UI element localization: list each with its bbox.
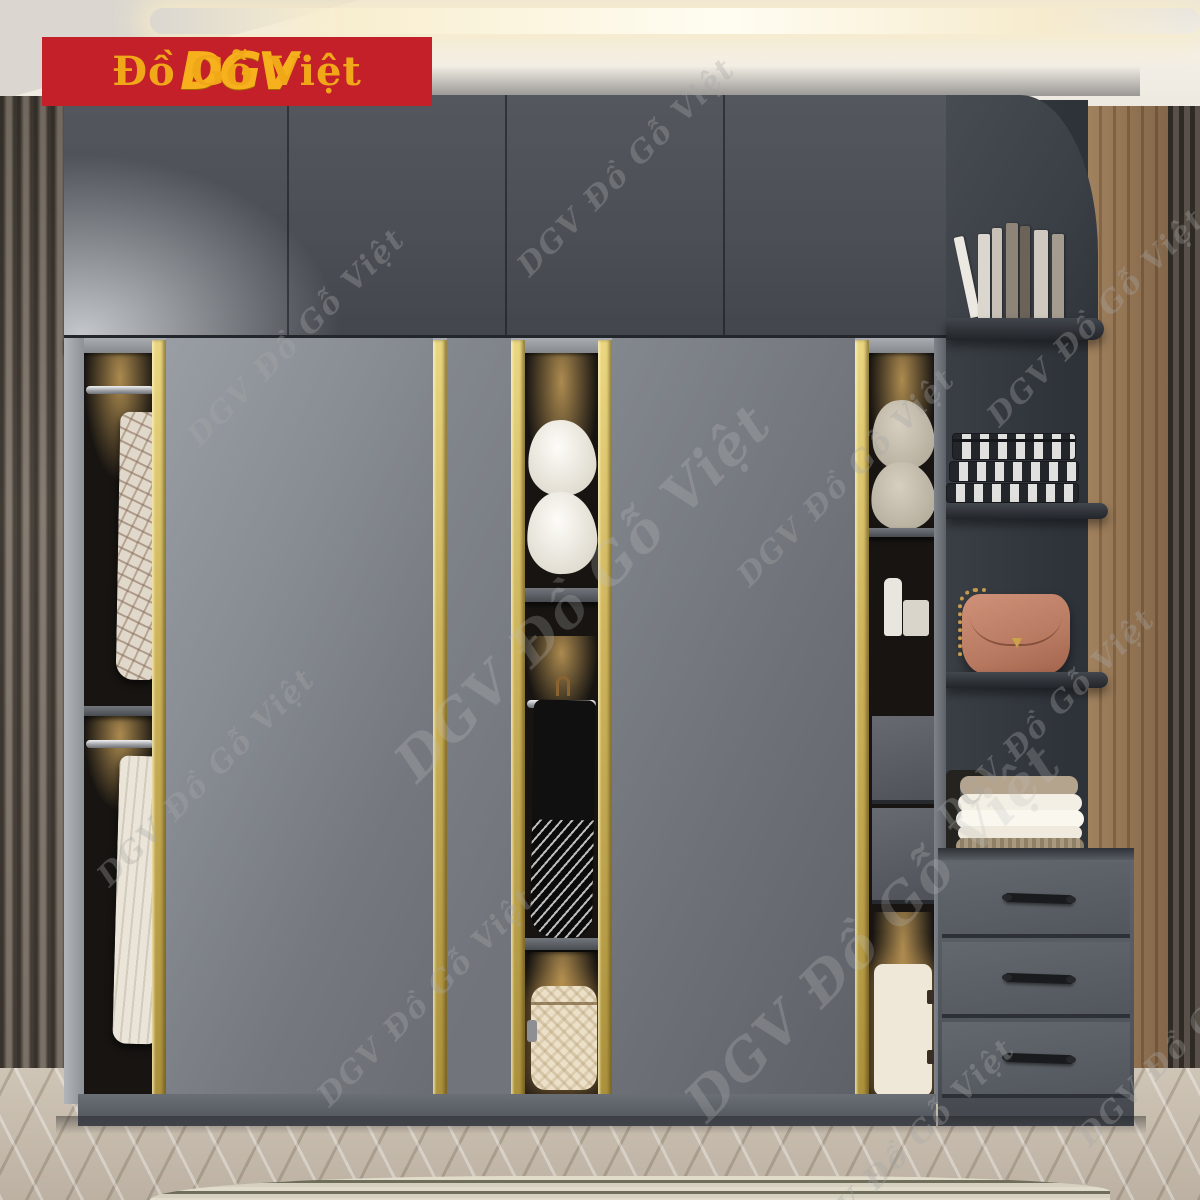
sliding-door-left: [166, 338, 433, 1100]
drawer: [942, 1022, 1130, 1098]
interior-shelf: [869, 528, 935, 537]
storage-box-clasp: [527, 1020, 537, 1042]
clothes-rail: [86, 740, 154, 748]
brand-name: Đồ Gỗ Việt: [112, 52, 362, 92]
corner-shelf: [946, 672, 1108, 688]
folded-sweater: [960, 776, 1078, 796]
curtain: [0, 96, 64, 1126]
gold-trim-strip: [152, 340, 166, 1098]
corner-shelf: [946, 503, 1108, 519]
product-photo-wardrobe-scene: DGV Đồ Gỗ Việt DGV Đồ Gỗ Việt DGV Đồ Gỗ …: [0, 0, 1200, 1200]
cabinet-seam: [505, 95, 507, 335]
floor-shadow: [56, 1116, 1146, 1134]
garment-stripes: [530, 819, 594, 938]
gold-trim-strip: [855, 340, 869, 1098]
book-spine: [1020, 226, 1030, 318]
three-drawer-chest: [938, 848, 1134, 1126]
book-spine: [1006, 223, 1018, 318]
striped-storage-case: [952, 433, 1076, 460]
white-decor-bottle: [884, 578, 902, 636]
led-cove-light: [150, 8, 1200, 34]
white-storage-case: [874, 964, 932, 1096]
clothes-rail: [86, 386, 154, 394]
drawer-handle: [1004, 973, 1074, 984]
upper-cabinets: [64, 95, 946, 338]
cabinet-seam: [287, 95, 289, 335]
hanger-hook: [556, 676, 570, 696]
gold-trim-strip: [598, 340, 612, 1098]
handbag: [962, 594, 1070, 674]
round-storage-box: [531, 986, 597, 1090]
interior-drawer: [872, 716, 934, 804]
drawer-handle: [1004, 893, 1074, 904]
striped-storage-case: [949, 461, 1079, 482]
drawer: [942, 862, 1130, 938]
storage-box-lid: [531, 1002, 597, 1005]
slat-wall: [1168, 106, 1200, 1072]
interior-shelf: [525, 938, 598, 950]
corner-shelf: [946, 318, 1104, 340]
gold-trim-strip: [511, 340, 525, 1098]
interior-shelf: [525, 588, 598, 602]
drawer-handle: [1004, 1053, 1074, 1064]
hanging-black-garment: [530, 699, 596, 938]
cabinet-seam: [723, 95, 725, 335]
drawer: [942, 942, 1130, 1018]
striped-storage-case: [946, 483, 1079, 503]
book-spine: [1034, 230, 1048, 318]
brand-banner: DGV Đồ Gỗ Việt: [42, 37, 432, 106]
book-spine: [978, 234, 990, 318]
book-spine: [992, 228, 1002, 318]
interior-shelf: [84, 706, 158, 716]
gold-trim-strip: [433, 340, 447, 1098]
handbag-chain: [958, 588, 988, 658]
decor-box: [903, 600, 929, 636]
interior-drawer: [872, 808, 934, 904]
sliding-door-narrow: [447, 338, 511, 1100]
case-lid-line: [953, 439, 1075, 442]
sliding-door-right: [612, 338, 855, 1100]
book-spine: [1052, 234, 1064, 318]
wardrobe-left-edge: [64, 338, 84, 1104]
chest-top-lip: [938, 848, 1134, 860]
